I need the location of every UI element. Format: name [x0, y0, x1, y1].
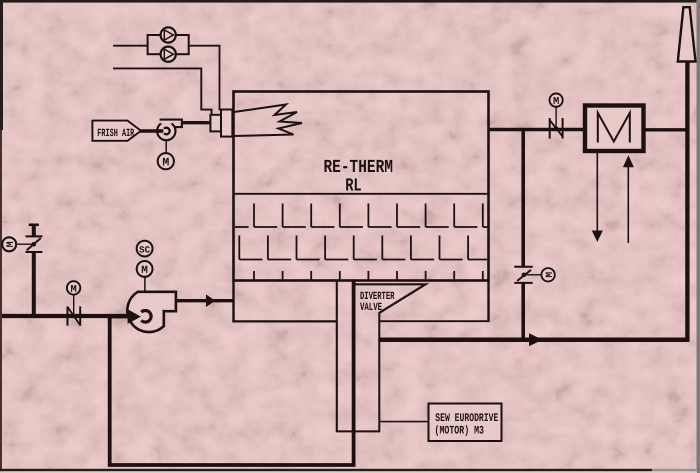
- svg-text:VALVE: VALVE: [360, 302, 382, 314]
- svg-text:M: M: [141, 265, 148, 277]
- svg-text:M: M: [162, 157, 169, 170]
- svg-text:M: M: [544, 272, 555, 278]
- svg-text:FRISH AIR: FRISH AIR: [97, 128, 134, 140]
- svg-text:M: M: [553, 96, 559, 108]
- svg-text:SC: SC: [139, 244, 150, 255]
- svg-text:(MOTOR) M3: (MOTOR) M3: [435, 424, 485, 437]
- svg-text:SEW EURODRIVE: SEW EURODRIVE: [435, 412, 498, 425]
- svg-text:M: M: [6, 241, 17, 247]
- svg-text:M: M: [70, 284, 76, 296]
